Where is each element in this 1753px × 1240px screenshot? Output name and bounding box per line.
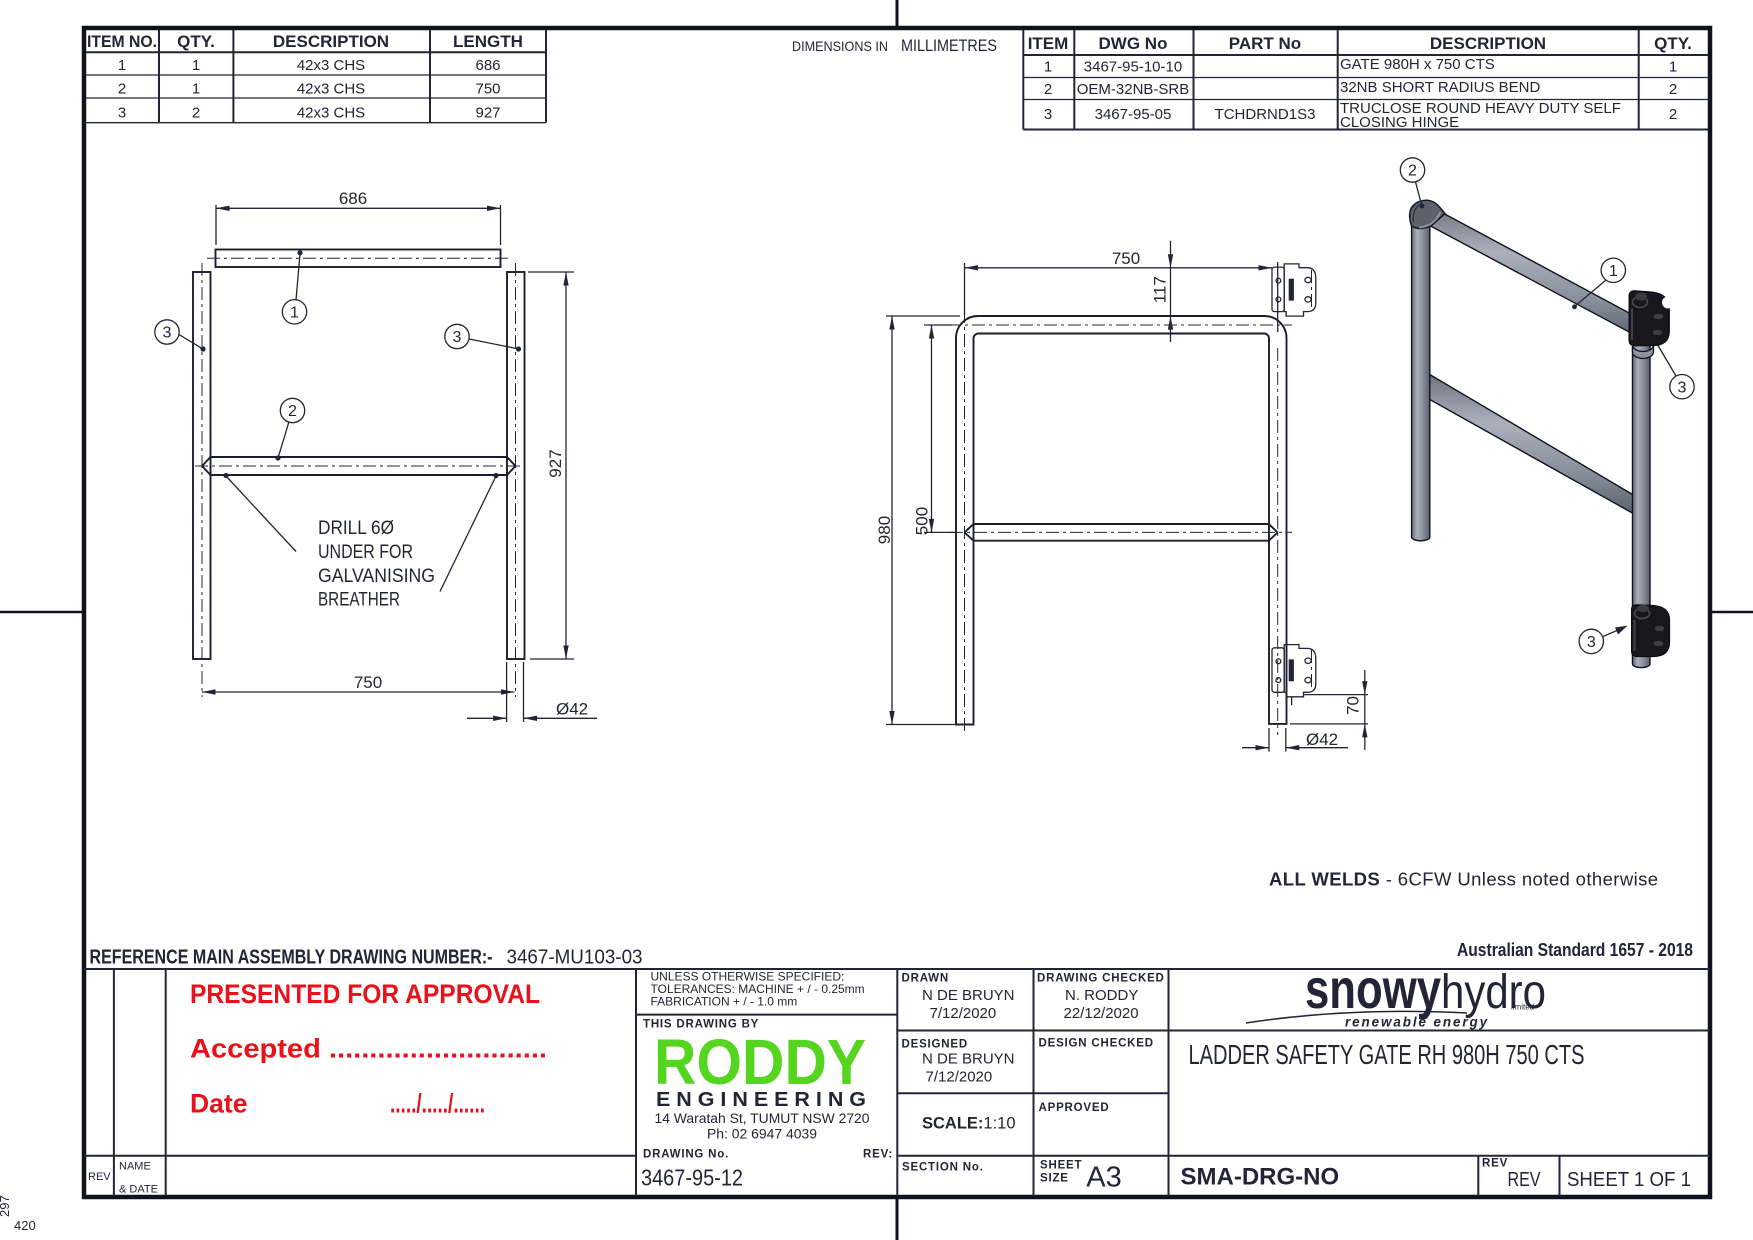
svg-text:REV: REV (88, 1171, 111, 1183)
svg-text:1: 1 (290, 305, 299, 322)
svg-text:LENGTH: LENGTH (453, 32, 523, 51)
svg-text:1: 1 (118, 57, 126, 74)
svg-text:2: 2 (1408, 163, 1417, 180)
svg-text:DWG No: DWG No (1099, 34, 1168, 53)
svg-text:927: 927 (475, 105, 500, 122)
svg-text:REV: REV (1508, 1169, 1542, 1191)
svg-text:OEM-32NB-SRB: OEM-32NB-SRB (1077, 81, 1190, 98)
svg-text:DRILL 6Ø: DRILL 6Ø (318, 518, 394, 539)
svg-text:1: 1 (1609, 263, 1618, 280)
svg-text:Ø42: Ø42 (1306, 730, 1338, 749)
svg-text:3467-MU103-03: 3467-MU103-03 (507, 947, 643, 969)
svg-text:SECTION No.: SECTION No. (902, 1162, 984, 1174)
svg-text:GATE 980H x 750 CTS: GATE 980H x 750 CTS (1340, 56, 1495, 73)
svg-text:ITEM: ITEM (1028, 34, 1069, 53)
svg-text:ALL WELDS - 6CFW Unless noted: ALL WELDS - 6CFW Unless noted otherwise (1269, 869, 1658, 890)
svg-text:UNDER FOR: UNDER FOR (318, 542, 413, 563)
svg-text:MILLIMETRES: MILLIMETRES (901, 37, 997, 55)
svg-text:RODDY: RODDY (654, 1026, 866, 1098)
svg-text:NAME: NAME (119, 1161, 151, 1173)
svg-text:117: 117 (1151, 276, 1170, 303)
svg-text:PART No: PART No (1229, 34, 1301, 53)
svg-text:BREATHER: BREATHER (318, 590, 400, 611)
svg-text:3: 3 (163, 325, 172, 342)
svg-text:E N G I N E E R I N G: E N G I N E E R I N G (656, 1089, 866, 1111)
svg-text:3467-95-10-10: 3467-95-10-10 (1084, 59, 1182, 76)
svg-text:2: 2 (288, 403, 297, 420)
svg-text:SIZE: SIZE (1040, 1173, 1069, 1185)
svg-text:3: 3 (1044, 106, 1052, 123)
svg-text:REV:: REV: (863, 1149, 893, 1161)
svg-text:3: 3 (453, 329, 462, 346)
svg-text:N DE BRUYN: N DE BRUYN (922, 987, 1015, 1004)
svg-text:Accepted .....................: Accepted ........................... (190, 1034, 547, 1064)
svg-text:750: 750 (354, 673, 382, 692)
svg-text:2: 2 (1044, 81, 1052, 98)
svg-text:Ph: 02 6947 4039: Ph: 02 6947 4039 (707, 1127, 817, 1142)
svg-text:3467-95-12: 3467-95-12 (641, 1165, 743, 1191)
svg-text:2: 2 (1669, 106, 1677, 123)
svg-text:renewable energy: renewable energy (1345, 1014, 1489, 1030)
svg-text:Ø42: Ø42 (556, 700, 588, 719)
svg-text:42x3 CHS: 42x3 CHS (297, 105, 365, 122)
svg-text:DESIGN CHECKED: DESIGN CHECKED (1039, 1038, 1154, 1050)
svg-text:750: 750 (475, 81, 500, 98)
svg-text:DESCRIPTION: DESCRIPTION (1430, 34, 1546, 53)
svg-text:750: 750 (1112, 249, 1140, 268)
svg-text:DRAWING No.: DRAWING No. (643, 1149, 729, 1161)
svg-text:70: 70 (1344, 696, 1363, 715)
svg-text:22/12/2020: 22/12/2020 (1064, 1005, 1139, 1022)
svg-text:FABRICATION + / - 1.0 mm: FABRICATION + / - 1.0 mm (651, 995, 798, 1009)
svg-text:500: 500 (913, 507, 932, 535)
svg-text:1: 1 (1669, 59, 1677, 76)
svg-text:REFERENCE MAIN ASSEMBLY DRAWIN: REFERENCE MAIN ASSEMBLY DRAWING NUMBER:- (90, 947, 493, 969)
svg-text:7/12/2020: 7/12/2020 (926, 1069, 993, 1086)
svg-text:1: 1 (1044, 59, 1052, 76)
svg-text:297: 297 (0, 1195, 12, 1217)
svg-text:42x3 CHS: 42x3 CHS (297, 81, 365, 98)
svg-text:snowy: snowy (1305, 957, 1441, 1020)
svg-text:2: 2 (192, 105, 200, 122)
svg-text:3: 3 (118, 105, 126, 122)
svg-text:686: 686 (339, 189, 367, 208)
svg-text:QTY.: QTY. (1654, 34, 1692, 53)
svg-text:686: 686 (475, 57, 500, 74)
svg-text:SHEET 1 OF 1: SHEET 1 OF 1 (1567, 1169, 1691, 1191)
svg-text:SMA-DRG-NO: SMA-DRG-NO (1181, 1164, 1340, 1191)
svg-text:CLOSING HINGE: CLOSING HINGE (1340, 114, 1459, 131)
svg-text:Date: Date (190, 1089, 247, 1119)
svg-text:DIMENSIONS IN: DIMENSIONS IN (792, 38, 888, 54)
svg-text:N DE BRUYN: N DE BRUYN (922, 1051, 1015, 1068)
svg-text:SHEET: SHEET (1040, 1160, 1082, 1172)
svg-text:14 Waratah St, TUMUT NSW 2720: 14 Waratah St, TUMUT NSW 2720 (655, 1111, 870, 1126)
svg-text:3467-95-05: 3467-95-05 (1095, 106, 1172, 123)
svg-text:GALVANISING: GALVANISING (318, 566, 435, 587)
svg-text:DESIGNED: DESIGNED (902, 1039, 968, 1051)
svg-text:QTY.: QTY. (177, 32, 215, 51)
svg-text:980: 980 (875, 516, 894, 544)
svg-text:927: 927 (546, 449, 565, 477)
svg-text:1: 1 (192, 81, 200, 98)
svg-text:DRAWING CHECKED: DRAWING CHECKED (1037, 973, 1165, 985)
svg-text:N. RODDY: N. RODDY (1065, 987, 1138, 1004)
svg-text:420: 420 (14, 1218, 36, 1233)
svg-text:Australian Standard 1657 - 20: Australian Standard 1657 - 2018 (1457, 940, 1693, 960)
svg-text:2: 2 (118, 81, 126, 98)
svg-text:1: 1 (192, 57, 200, 74)
svg-text:ITEM NO.: ITEM NO. (87, 32, 157, 51)
svg-text:2: 2 (1669, 81, 1677, 98)
svg-text:32NB SHORT RADIUS BEND: 32NB SHORT RADIUS BEND (1340, 79, 1540, 96)
svg-text:APPROVED: APPROVED (1039, 1102, 1110, 1114)
svg-text:SCALE:1:10: SCALE:1:10 (922, 1115, 1016, 1133)
svg-text:7/12/2020: 7/12/2020 (930, 1005, 997, 1022)
svg-text:LADDER SAFETY GATE RH 980H 750: LADDER SAFETY GATE RH 980H 750 CTS (1189, 1039, 1585, 1070)
svg-text:A3: A3 (1086, 1162, 1121, 1194)
svg-text:limited: limited (1511, 1003, 1534, 1012)
svg-text:TCHDRND1S3: TCHDRND1S3 (1215, 106, 1316, 123)
svg-text:DESCRIPTION: DESCRIPTION (273, 32, 389, 51)
svg-text:REV: REV (1482, 1158, 1508, 1170)
svg-text:DRAWN: DRAWN (902, 973, 949, 985)
svg-text:& DATE: & DATE (119, 1184, 158, 1196)
svg-text:3: 3 (1587, 634, 1596, 651)
svg-text:...../...../......: ...../...../...... (390, 1089, 485, 1119)
svg-text:3: 3 (1678, 379, 1687, 396)
svg-text:42x3 CHS: 42x3 CHS (297, 57, 365, 74)
svg-text:PRESENTED FOR APPROVAL: PRESENTED FOR APPROVAL (190, 979, 540, 1009)
